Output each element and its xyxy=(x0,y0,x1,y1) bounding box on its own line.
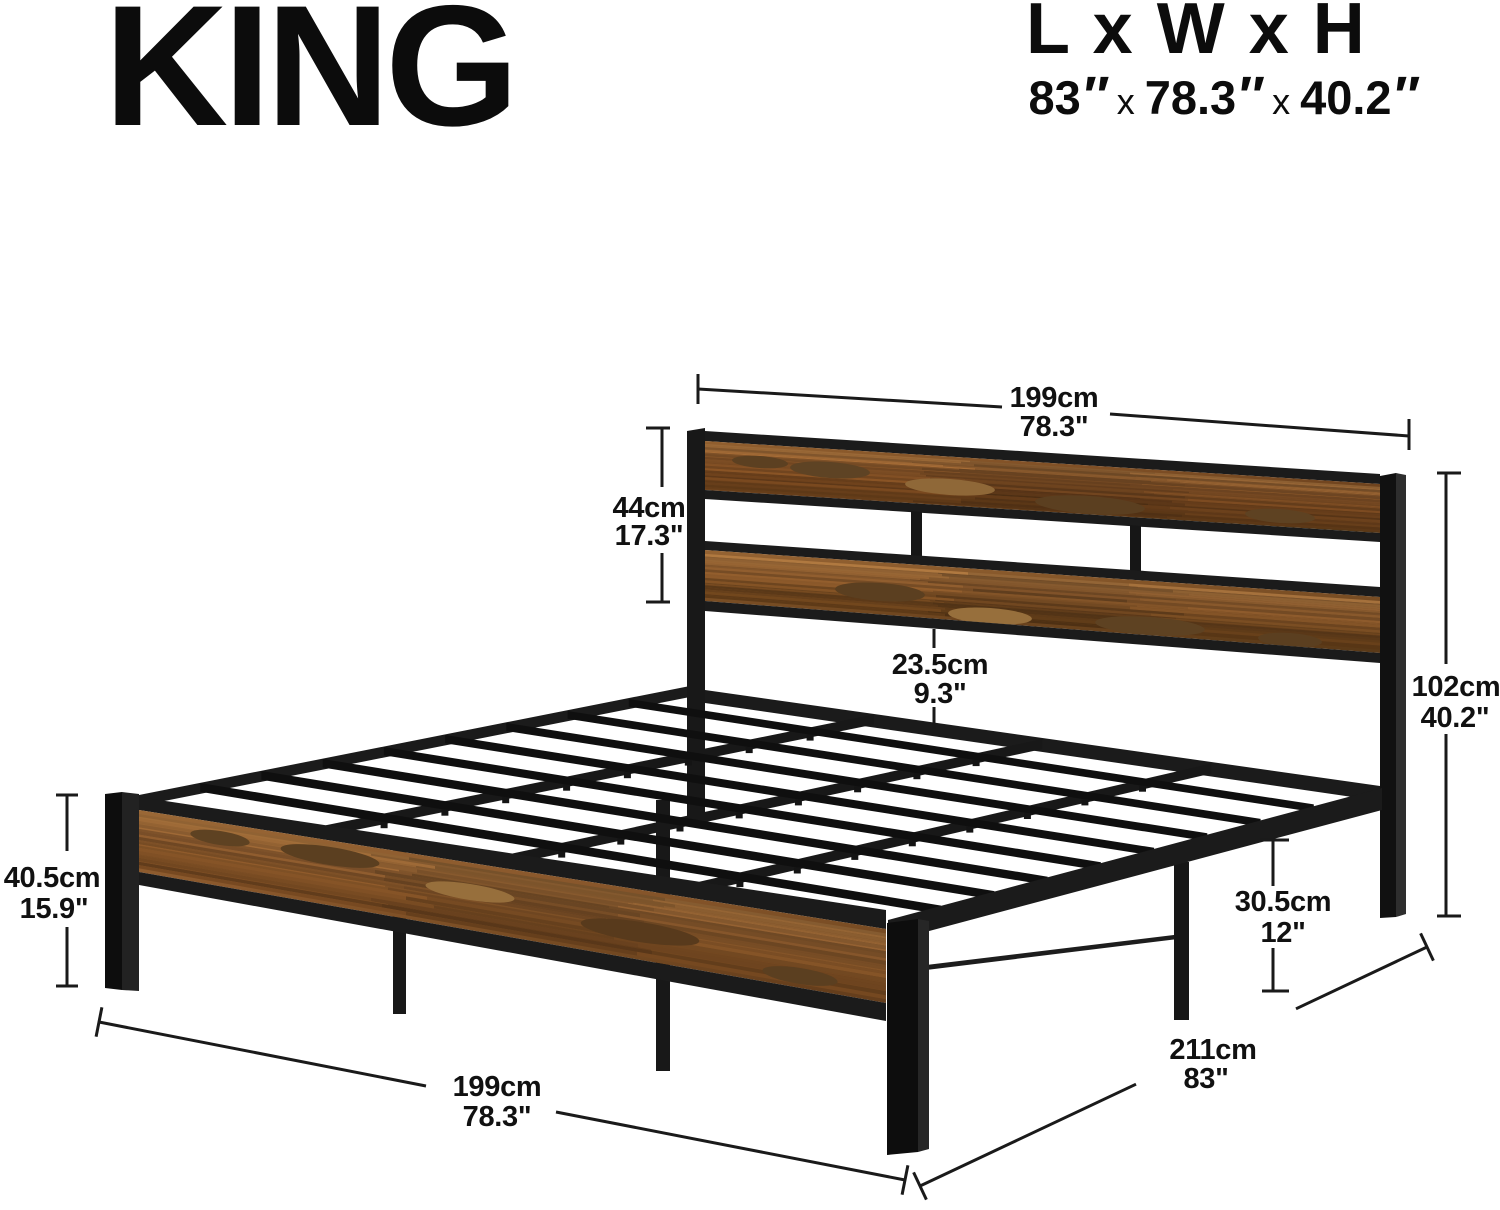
svg-text:12": 12" xyxy=(1260,917,1305,949)
svg-text:L x W x H: L x W x H xyxy=(1026,0,1367,69)
svg-text:102cm: 102cm xyxy=(1412,671,1500,703)
svg-text:199cm: 199cm xyxy=(1010,382,1099,414)
svg-text:9.3": 9.3" xyxy=(914,678,967,710)
svg-text:40.5cm: 40.5cm xyxy=(4,862,101,894)
svg-text:30.5cm: 30.5cm xyxy=(1235,886,1332,918)
svg-text:15.9": 15.9" xyxy=(20,893,89,925)
svg-text:40.2": 40.2" xyxy=(1421,702,1490,734)
svg-text:211cm: 211cm xyxy=(1169,1034,1256,1066)
svg-text:KING: KING xyxy=(104,0,514,162)
svg-text:199cm: 199cm xyxy=(453,1071,542,1103)
svg-text:83″ x 78.3″ x 40.2″: 83″ x 78.3″ x 40.2″ xyxy=(1029,66,1420,126)
svg-text:23.5cm: 23.5cm xyxy=(892,649,989,681)
svg-text:78.3": 78.3" xyxy=(1020,411,1089,443)
svg-text:83": 83" xyxy=(1183,1063,1228,1095)
svg-text:78.3": 78.3" xyxy=(463,1101,532,1133)
svg-text:17.3": 17.3" xyxy=(615,520,684,552)
